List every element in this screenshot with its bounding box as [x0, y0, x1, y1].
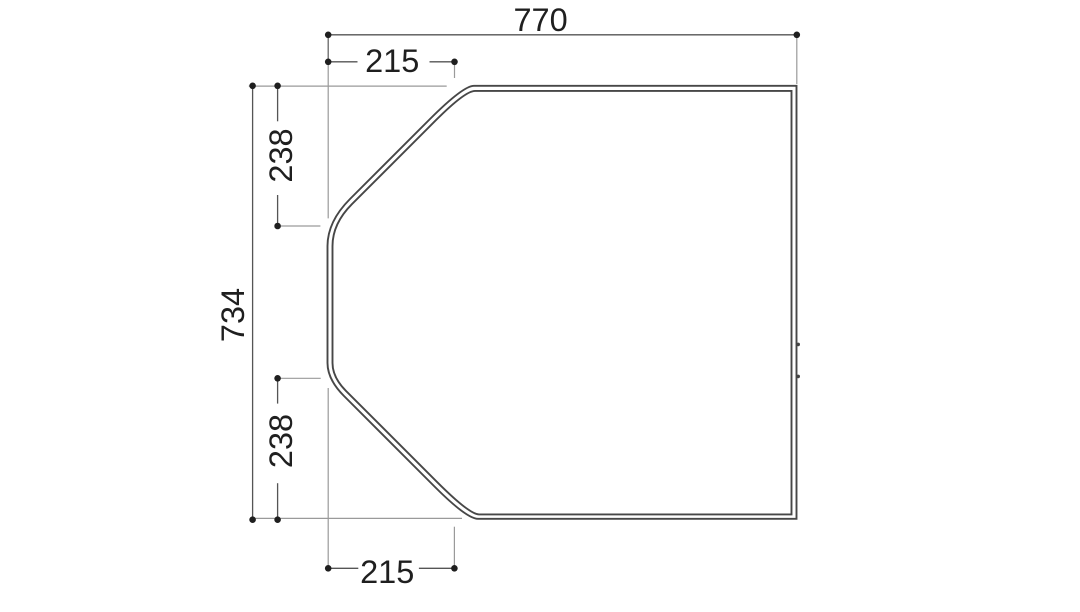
svg-text:215: 215	[360, 554, 414, 590]
svg-text:238: 238	[263, 414, 299, 468]
svg-text:215: 215	[365, 43, 419, 79]
svg-text:770: 770	[513, 2, 567, 38]
svg-text:734: 734	[215, 288, 251, 342]
svg-text:238: 238	[263, 128, 299, 182]
